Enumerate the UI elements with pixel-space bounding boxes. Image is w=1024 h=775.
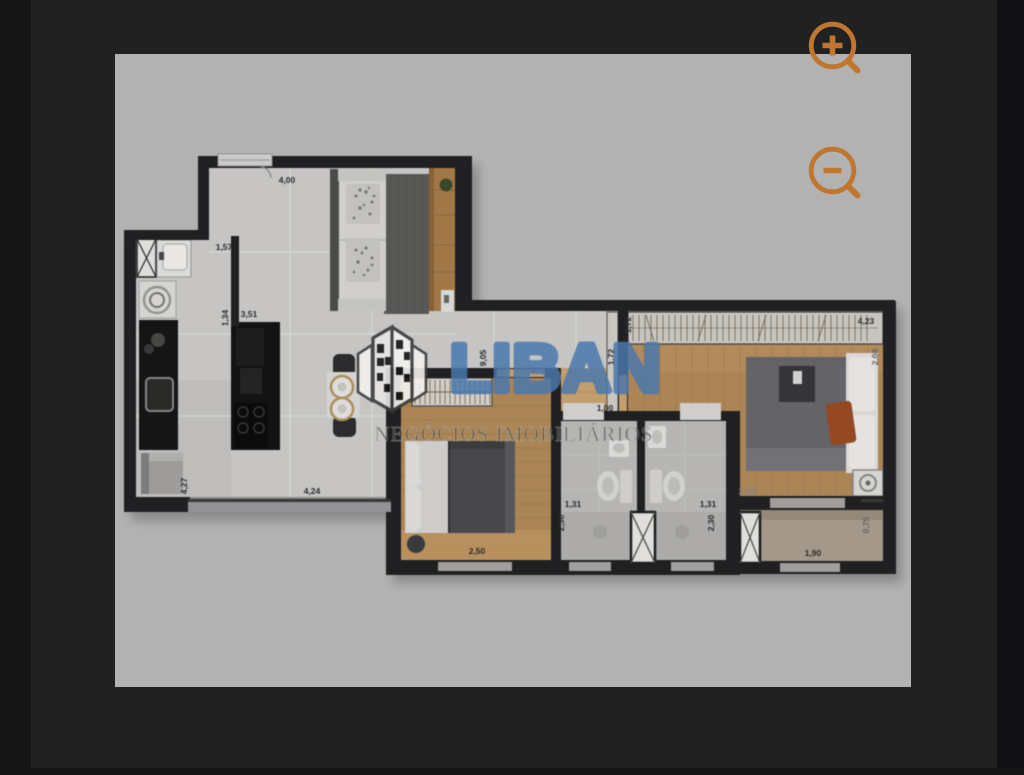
svg-text:LIBAN: LIBAN — [450, 331, 662, 406]
svg-text:NEGÓCIOS IMOBILIÁRIOS: NEGÓCIOS IMOBILIÁRIOS — [374, 422, 653, 446]
